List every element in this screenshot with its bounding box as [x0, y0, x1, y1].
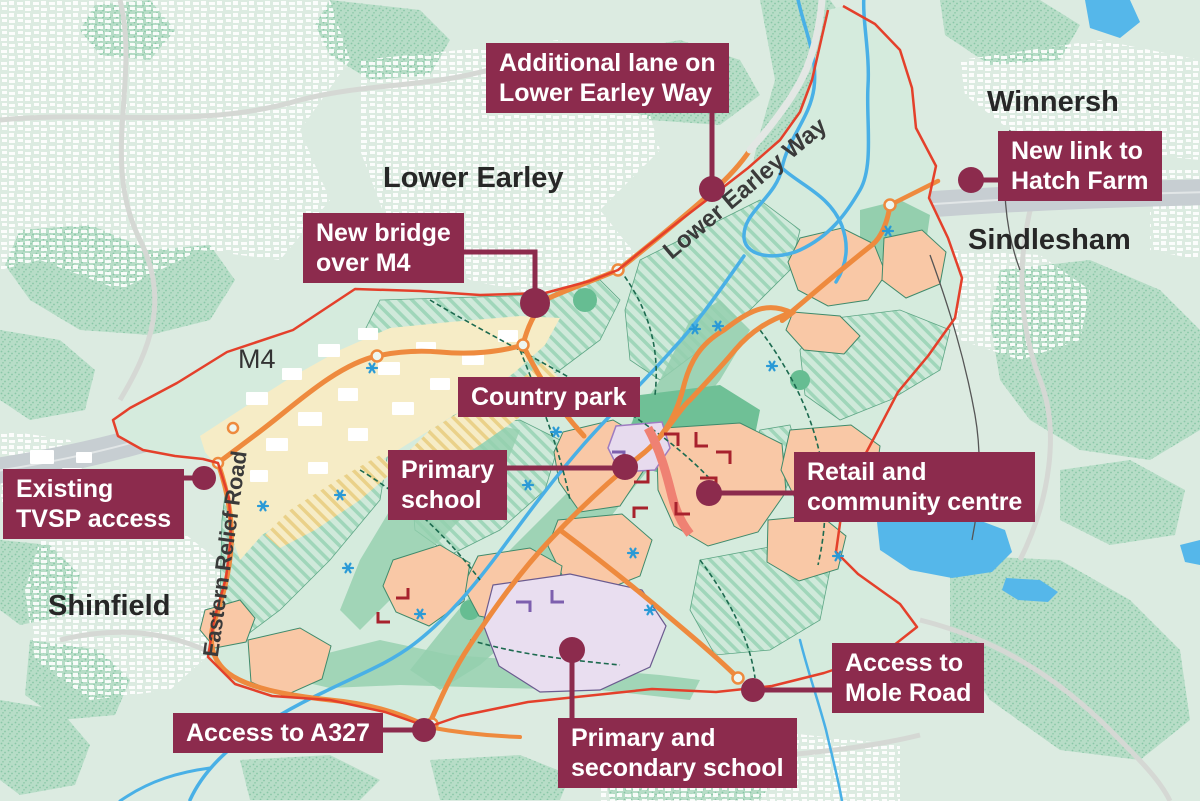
leader-dot-primary-secondary [559, 637, 585, 663]
place-label-winnersh: Winnersh [987, 86, 1119, 119]
callout-text: TVSP access [16, 504, 171, 534]
callout-text: Lower Earley Way [499, 78, 716, 108]
callout-primary-secondary-school: Primary and secondary school [558, 718, 797, 788]
leader-dot-access-mole [741, 678, 765, 702]
callout-text: over M4 [316, 248, 451, 278]
callout-text: Retail and [807, 457, 1022, 487]
callout-retail-community-centre: Retail and community centre [794, 452, 1035, 522]
callout-text: Country park [471, 382, 627, 412]
callout-text: Primary [401, 455, 494, 485]
leader-dot-access-a327 [412, 718, 436, 742]
place-label-m4: M4 [238, 344, 276, 375]
callout-text: New link to [1011, 136, 1149, 166]
callout-text: community centre [807, 487, 1022, 517]
callout-additional-lane: Additional lane on Lower Earley Way [486, 43, 729, 113]
leader-dot-new-link [958, 167, 984, 193]
callout-existing-tvsp-access: Existing TVSP access [3, 469, 184, 539]
place-label-lower-earley: Lower Earley [383, 162, 564, 195]
callout-primary-school: Primary school [388, 450, 507, 520]
callout-text: Hatch Farm [1011, 166, 1149, 196]
callout-access-a327: Access to A327 [173, 713, 383, 753]
place-label-shinfield: Shinfield [48, 590, 170, 623]
callout-new-link-hatch-farm: New link to Hatch Farm [998, 131, 1162, 201]
map-canvas: Additional lane on Lower Earley Way New … [0, 0, 1200, 801]
leader-dot-primary-school [612, 454, 638, 480]
callout-text: Access to A327 [186, 718, 370, 748]
callout-text: Mole Road [845, 678, 971, 708]
leader-dot-retail [696, 480, 722, 506]
callout-access-mole-road: Access to Mole Road [832, 643, 984, 713]
callout-text: Existing [16, 474, 171, 504]
leader-dot-new-bridge [520, 288, 550, 318]
place-label-sindlesham: Sindlesham [968, 224, 1131, 257]
callout-new-bridge-m4: New bridge over M4 [303, 213, 464, 283]
callout-text: secondary school [571, 753, 784, 783]
callout-text: Additional lane on [499, 48, 716, 78]
callout-text: Primary and [571, 723, 784, 753]
callout-text: school [401, 485, 494, 515]
callout-text: New bridge [316, 218, 451, 248]
callout-country-park: Country park [458, 377, 640, 417]
callout-text: Access to [845, 648, 971, 678]
leader-dot-existing-tvsp [192, 466, 216, 490]
